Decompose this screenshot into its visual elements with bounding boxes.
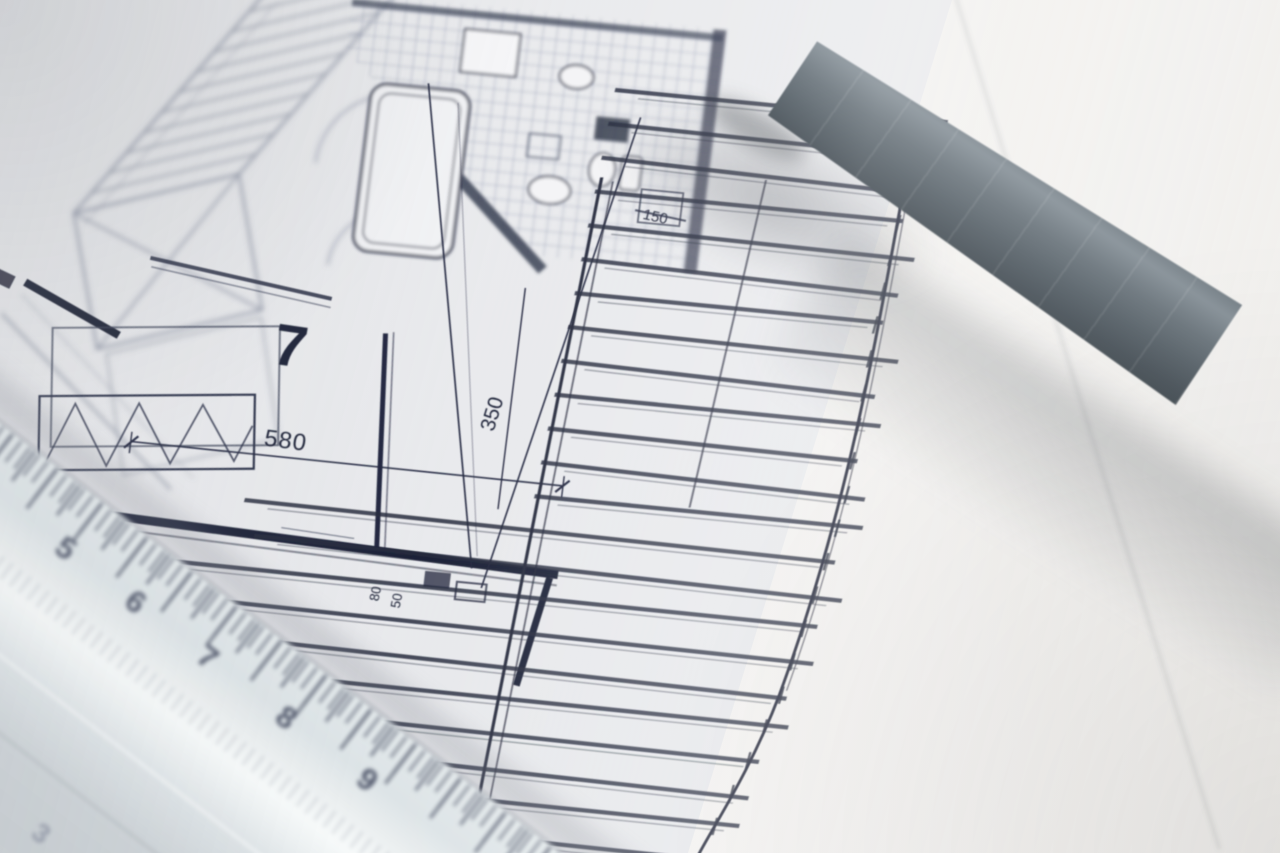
dimension-line-580 — [130, 441, 563, 485]
room-wall — [148, 258, 335, 299]
dimension-label-580: 580 — [262, 426, 308, 457]
plan-line — [196, 18, 361, 88]
plan-line — [144, 78, 309, 148]
plan-line — [109, 119, 274, 189]
plan-line — [548, 428, 857, 461]
plan-line — [161, 58, 326, 128]
photo-of-floor-plan: 580 350 80 50 150 7 — [0, 0, 1280, 853]
plan-line — [558, 502, 848, 536]
plan-line — [578, 401, 865, 434]
plan-line — [844, 486, 849, 503]
plan-line — [571, 437, 842, 466]
plan-line — [91, 139, 256, 209]
bathtub-icon — [352, 83, 472, 259]
plan-line — [564, 471, 851, 504]
plan-line — [179, 38, 344, 108]
dimension-label-350: 350 — [476, 394, 508, 433]
plan-line — [535, 493, 863, 531]
washer-icon — [460, 29, 521, 77]
plan-line — [835, 520, 840, 537]
room-number: 7 — [268, 310, 312, 380]
dimension-line-350 — [498, 288, 525, 509]
plan-line — [126, 98, 291, 168]
plan-line — [540, 462, 865, 499]
dimension-label-50: 50 — [388, 592, 406, 609]
